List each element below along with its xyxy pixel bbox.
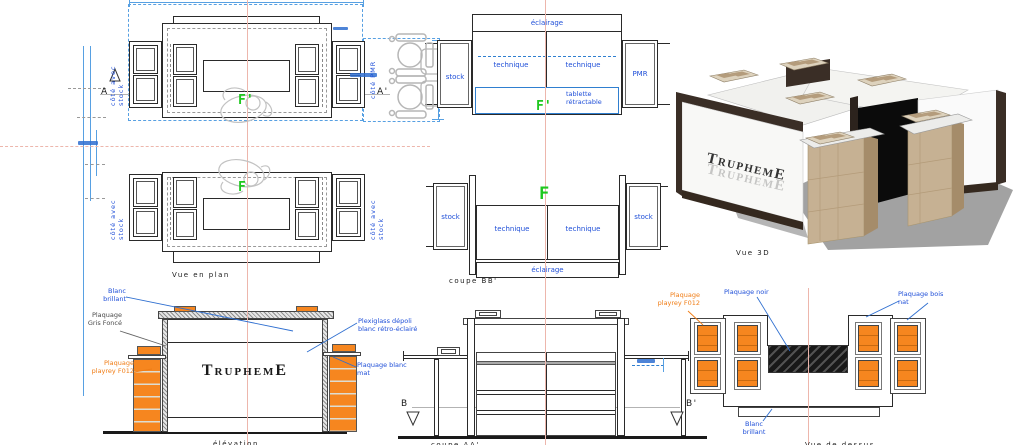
stock-label: stock: [441, 73, 469, 81]
side-post: [617, 318, 625, 436]
gray-leader-line: [120, 331, 166, 346]
wing-cap-inner: [441, 349, 456, 354]
centerline-horizontal: [0, 146, 430, 147]
center-divider: [546, 31, 547, 88]
orange-cap: [137, 346, 161, 355]
wing-ext-line: [660, 246, 668, 247]
dimension-text: [637, 359, 655, 363]
cabinet: [295, 209, 319, 240]
wing-tick: [688, 351, 689, 361]
top-band-gris: [158, 311, 334, 319]
cabinet: [336, 178, 361, 207]
label-blanc-brillant: Blanc brillant: [733, 421, 775, 437]
centerline-vertical-right: [808, 288, 809, 445]
dimension-tick: [663, 358, 664, 372]
wing-ext-line: [426, 246, 434, 247]
dimension-text: [333, 27, 348, 30]
cad-drawing-sheet: F' côté avec stock côté PMR A A' F côté …: [0, 0, 1024, 445]
cabinet: [295, 76, 319, 107]
cabinet: [173, 177, 197, 208]
cabinet: [173, 76, 197, 107]
cabinet-orange: [855, 357, 882, 390]
top-band: [463, 318, 629, 325]
dimension-text: [78, 141, 98, 145]
cabinet: [173, 209, 197, 240]
cabinet: [295, 44, 319, 75]
repere-letter: F: [238, 180, 246, 195]
repere-letter: F: [539, 184, 549, 204]
wood-column-front: [800, 128, 884, 244]
orange-cap: [296, 306, 318, 312]
side-label-left: côté avec stock: [110, 178, 126, 240]
extension-line: [85, 198, 105, 199]
section-marker-b2: B': [686, 399, 698, 409]
side-label-right: côté avec stock: [370, 178, 386, 240]
wood-column-right: [900, 114, 972, 226]
cabinet-orange: [894, 357, 921, 390]
wing-post: [434, 359, 439, 436]
cabinet-orange: [694, 357, 721, 390]
pmr-label: PMR: [626, 70, 654, 78]
caption-vue-3d: Vue 3D: [736, 249, 770, 257]
dimension-dashed: [632, 365, 664, 366]
wing-ext-line: [425, 104, 437, 105]
label-blanc-brillant: Blanc brillant: [88, 288, 126, 304]
cabinet: [295, 177, 319, 208]
stock-label: stock: [629, 213, 658, 221]
wing-line: [625, 355, 689, 356]
cabinet: [133, 45, 158, 74]
dimension-line: [83, 46, 84, 396]
side-post: [467, 318, 475, 436]
cabinet: [173, 44, 197, 75]
section-marker-b: B: [401, 399, 409, 409]
extension-line: [77, 117, 106, 118]
dimension-tick: [363, 0, 364, 7]
wood-column: [329, 356, 357, 432]
shelf-line: [477, 394, 615, 395]
side-post: [619, 175, 626, 275]
cabinet-orange: [855, 322, 882, 355]
caption-vue-en-plan: Vue en plan: [172, 271, 230, 279]
eclairage-label: éclairage: [476, 266, 619, 274]
cabinet-orange: [694, 322, 721, 355]
ground-line: [398, 436, 707, 439]
dark-edge: [676, 92, 682, 196]
center-divider: [547, 206, 548, 259]
door-swing-dashed: [170, 44, 171, 107]
wing-line: [625, 358, 689, 359]
section-marker-a: A: [101, 87, 109, 97]
vue-3d-render: TruphemE TruphemE: [668, 40, 1024, 258]
technique-label: technique: [548, 61, 618, 69]
orange-cap: [332, 344, 356, 352]
orange-cap: [174, 306, 196, 312]
wing-post: [681, 359, 686, 436]
side-label-left: côté avec stock: [110, 44, 126, 106]
shelf-line: [477, 414, 615, 415]
cap-block-inner: [599, 312, 617, 316]
caption-elevation: élévation: [213, 440, 259, 445]
wing-tick: [403, 351, 404, 361]
cabinet: [336, 75, 361, 104]
label-bois: Plaquage bois nat: [898, 291, 948, 307]
caption-vue-dessus: Vue de dessus: [805, 441, 875, 445]
door-swing-dashed: [322, 44, 323, 107]
side-post: [322, 319, 328, 432]
dark-edge: [996, 90, 1006, 185]
repere-letter: F': [536, 99, 552, 114]
eclairage-band-line: [473, 31, 621, 32]
eclairage-label: éclairage: [472, 19, 622, 27]
wood-column: [133, 359, 161, 432]
bottom-tab: [738, 407, 880, 417]
cabinet: [336, 45, 361, 74]
arm-inner-edge: [848, 315, 849, 346]
door-swing-dashed: [170, 177, 171, 240]
dimension-tick: [432, 119, 444, 120]
label-blanc-mat: Plaquage blanc mat: [357, 362, 415, 378]
cabinet-orange: [734, 357, 761, 390]
arm-inner-edge: [767, 315, 768, 346]
brand-logo: TruphemE: [168, 362, 322, 380]
cap-block-inner: [479, 312, 497, 316]
label-plexiglass: Plexiglass dépoli blanc rétro-éclairé: [358, 318, 422, 334]
wing-ext-line: [426, 186, 434, 187]
label-noir: Plaquage noir: [724, 289, 784, 297]
cabinet: [133, 75, 158, 104]
shelf-line: [477, 410, 615, 411]
shelf-band: [477, 361, 615, 365]
dashed-level-line: [478, 56, 616, 57]
dimension-line: [96, 130, 97, 176]
dimension-line: [129, 2, 363, 3]
technique-label: technique: [549, 225, 617, 233]
shelf-line: [477, 390, 615, 391]
extension-line: [85, 164, 105, 165]
label-playrey: Plaquage playrey F012: [86, 360, 134, 376]
cabinet: [133, 178, 158, 207]
side-post: [469, 175, 476, 275]
dimension-line: [90, 46, 91, 201]
tablette-label: tablette rétractable: [566, 91, 620, 107]
section-marker-a2: A': [377, 87, 389, 97]
label-gris-fonce: Plaquage Gris Foncé: [82, 312, 122, 328]
cabinet: [133, 208, 158, 237]
caption-coupe-aa: coupe AA': [431, 441, 480, 445]
cabinet-orange: [734, 322, 761, 355]
cabinet: [336, 208, 361, 237]
wing-ext-line: [425, 43, 437, 44]
panel-line: [168, 342, 322, 343]
technique-label: technique: [478, 225, 546, 233]
label-playrey: Plaquage playrey F012: [652, 292, 700, 308]
door-swing-dashed: [322, 177, 323, 240]
technique-label: technique: [476, 61, 546, 69]
wing-ext-line: [660, 186, 668, 187]
repere-letter: F': [238, 93, 254, 108]
section-arrow-b: [407, 412, 419, 425]
stock-label: stock: [436, 213, 465, 221]
caption-coupe-bb: coupe BB': [449, 277, 498, 285]
cabinet-orange: [894, 322, 921, 355]
panel-line: [168, 417, 322, 418]
